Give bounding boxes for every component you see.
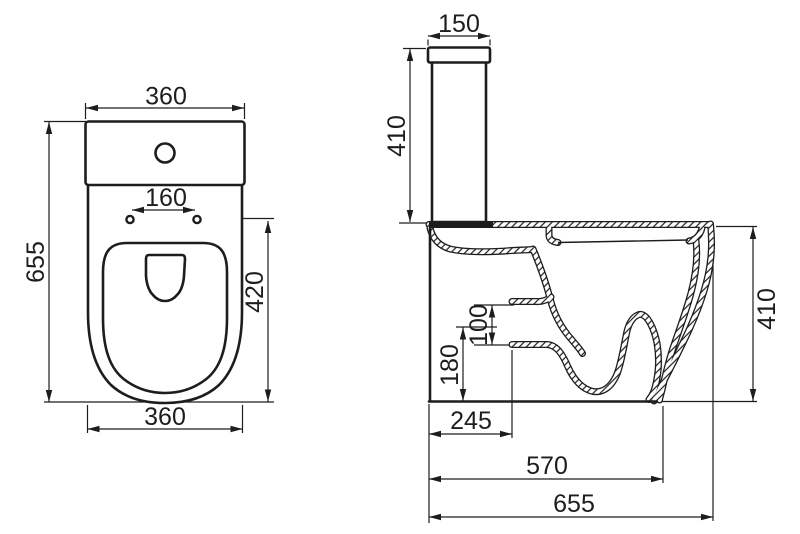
dim-label-inlet-setback: 245	[450, 407, 492, 435]
dim-label-lid-depth: 150	[438, 10, 480, 38]
seat-underside-line	[558, 240, 688, 243]
dim-label-bowl-height: 410	[753, 288, 781, 330]
flush-button-hole	[156, 144, 175, 163]
dim-label-base-width: 360	[144, 403, 186, 431]
dim-label-bolt-spacing: 160	[145, 184, 187, 212]
dim-label-overall-depth: 655	[553, 490, 595, 518]
tank-joint-solid-section	[429, 221, 493, 228]
side-view: 150 410 100 180 245 570 655 410	[383, 10, 781, 523]
dim-label-tank-width: 360	[145, 83, 187, 111]
side-tank-lid	[428, 48, 490, 63]
dim-label-tank-height: 410	[383, 115, 411, 157]
dim-label-bowl-length: 420	[241, 271, 269, 313]
bolt-hole-right	[193, 216, 200, 223]
dim-label-foot-depth: 570	[526, 452, 568, 480]
top-view: 360 160 655 420 360	[22, 83, 274, 434]
technical-drawing: 360 160 655 420 360	[0, 0, 800, 534]
dim-label-inlet-opening: 100	[465, 304, 493, 346]
side-tank-body	[432, 62, 486, 222]
drawing-page: 360 160 655 420 360	[0, 0, 800, 534]
dim-label-inlet-center-height: 180	[436, 344, 464, 386]
bowl-opening-outline	[146, 255, 185, 301]
dim-label-overall-length: 655	[22, 241, 50, 283]
bolt-hole-left	[126, 216, 133, 223]
